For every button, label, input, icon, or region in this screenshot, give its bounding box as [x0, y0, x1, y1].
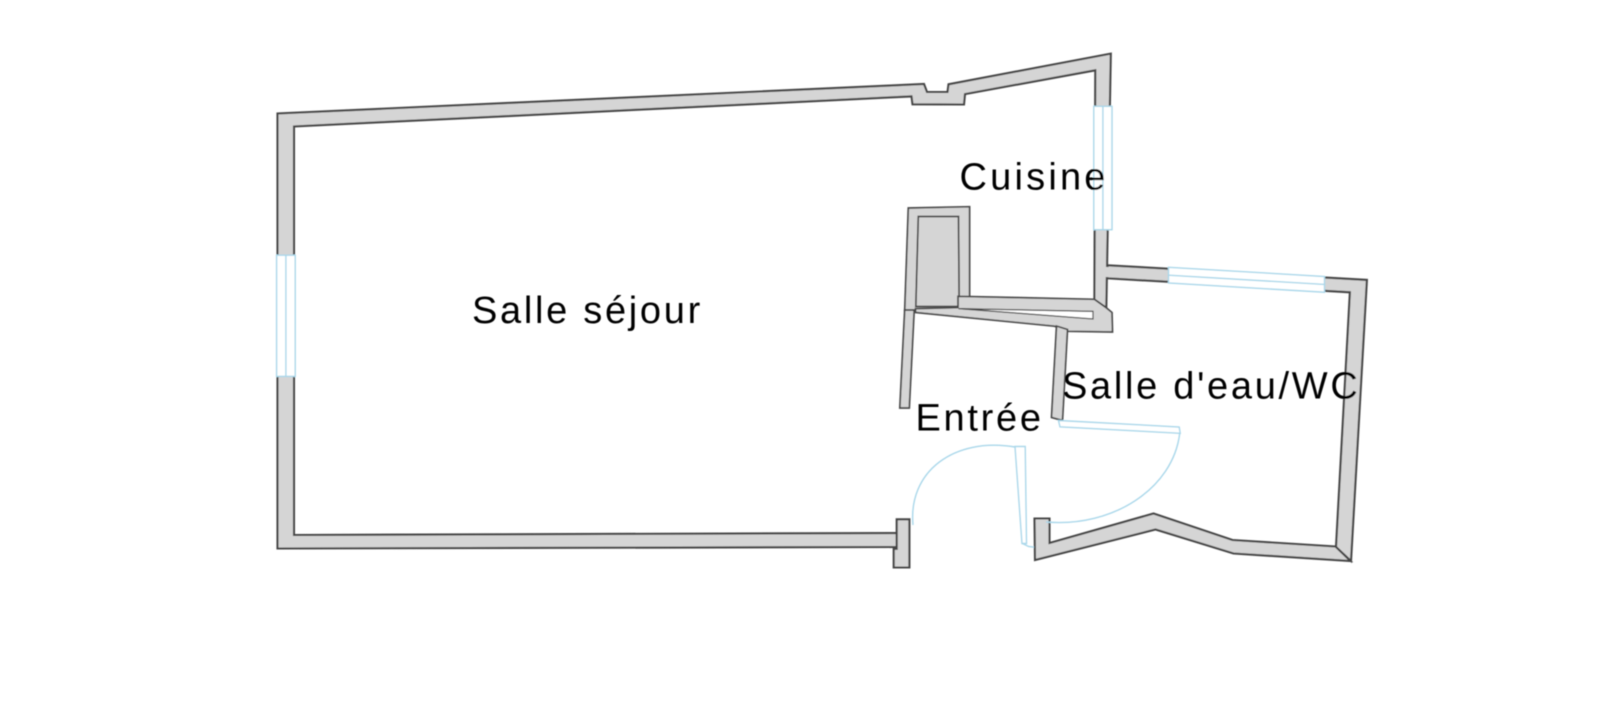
svg-text:Cuisine: Cuisine — [960, 157, 1109, 199]
svg-text:Entrée: Entrée — [916, 398, 1044, 440]
svg-text:Salle séjour: Salle séjour — [472, 290, 703, 332]
svg-text:Salle d'eau/WC: Salle d'eau/WC — [1062, 366, 1361, 408]
